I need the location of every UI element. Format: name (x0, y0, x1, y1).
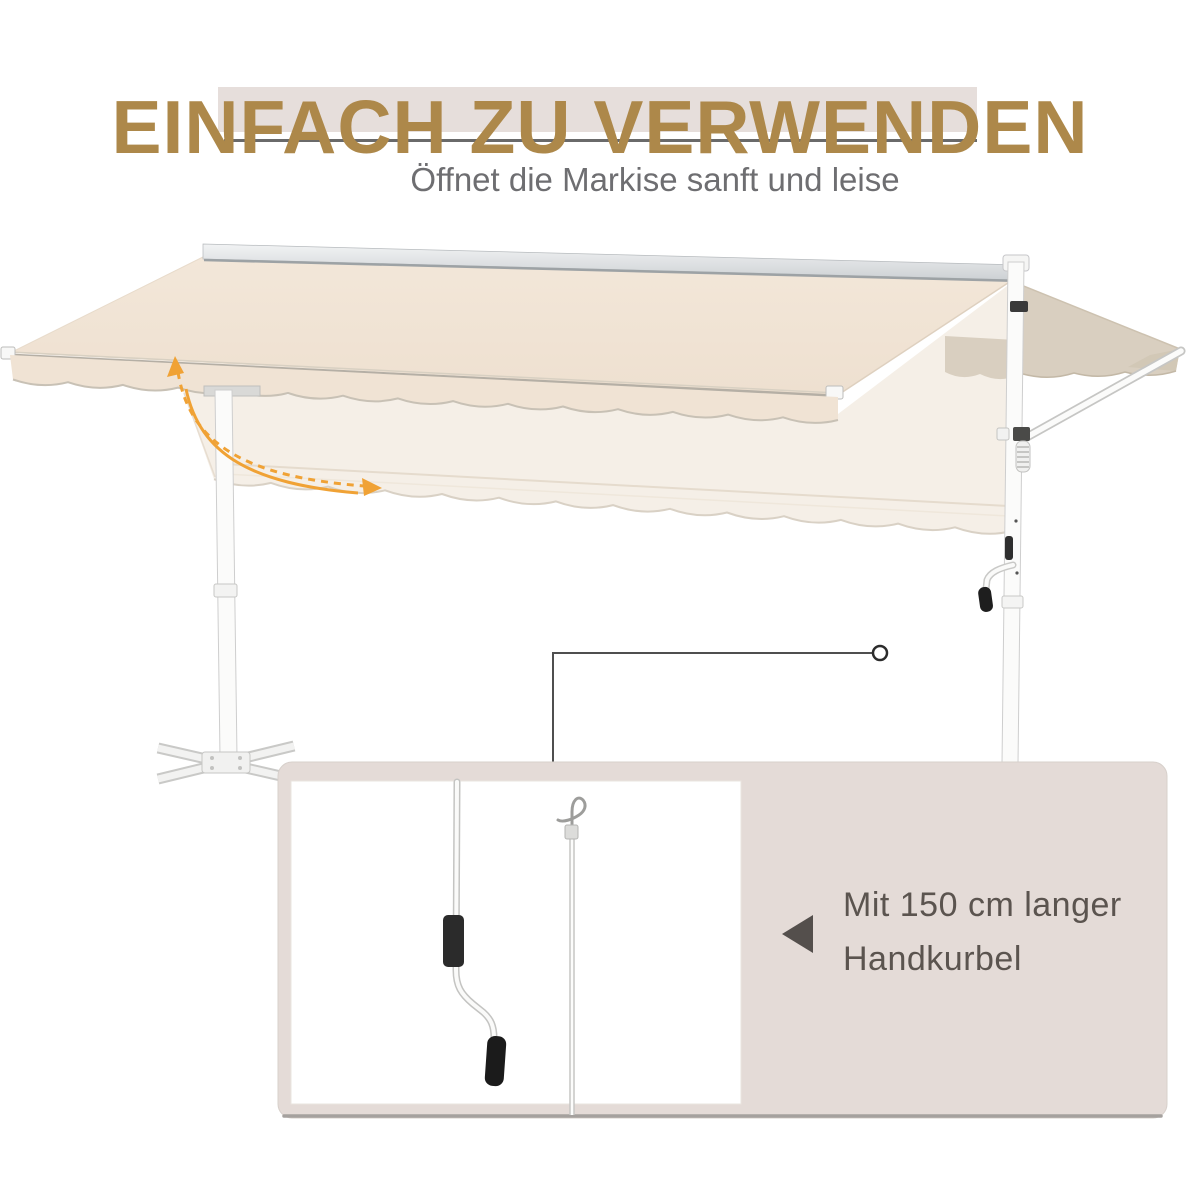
crank-note-line1: Mit 150 cm langer (843, 886, 1122, 924)
callout-line (553, 646, 887, 762)
crank-note-line2: Handkurbel (843, 940, 1022, 978)
arm-clamp-icon (1013, 427, 1030, 441)
detail-white-box (291, 781, 741, 1104)
crank-sleeve-icon (443, 915, 464, 967)
rod-collar (565, 825, 578, 839)
crank-handle-icon (484, 1035, 506, 1086)
post-collar (1002, 596, 1023, 608)
product-scene: Mit 150 cm langer Handkurbel (0, 0, 1200, 1200)
inset-panel: Mit 150 cm langer Handkurbel (278, 762, 1167, 1118)
base-plate (202, 752, 250, 773)
crank-grip-icon (977, 586, 993, 613)
post-grip-icon (1005, 536, 1013, 560)
clip-icon (1010, 301, 1028, 312)
callout-circle (873, 646, 887, 660)
wing-underside-band (945, 336, 1016, 379)
post-collar (214, 584, 237, 597)
tension-spring-icon (1016, 441, 1030, 472)
